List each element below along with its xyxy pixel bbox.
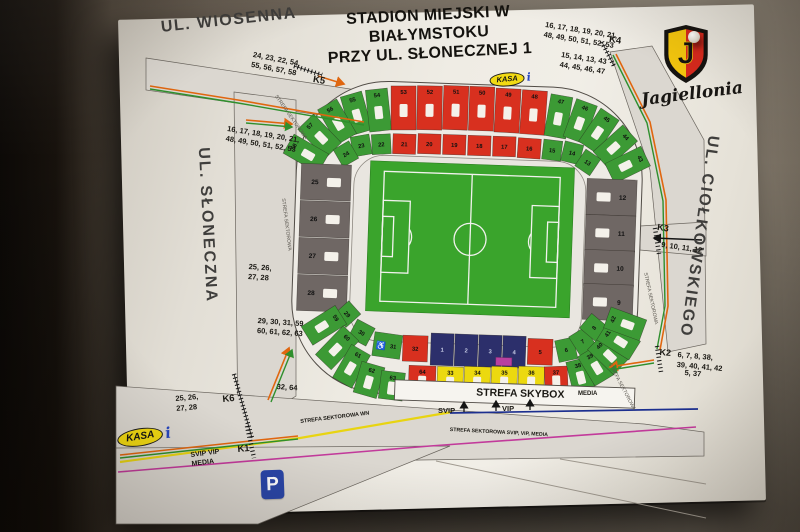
sector-list-se2: 5, 37 xyxy=(684,368,701,379)
gate-label-k5: K5 xyxy=(312,74,326,88)
sector-number-49: 49 xyxy=(505,92,513,98)
sector-21: 21 xyxy=(392,134,416,155)
sector-17: 17 xyxy=(492,136,516,157)
sector-number-16: 16 xyxy=(526,146,534,152)
sector-number-28: 28 xyxy=(307,290,315,297)
sector-32: 32 xyxy=(402,335,428,362)
sector-number-26: 26 xyxy=(310,216,318,223)
sector-2: 2 xyxy=(454,334,478,367)
sector-number-11: 11 xyxy=(618,231,625,238)
sector-10: 10 xyxy=(583,249,634,287)
sector-number-19: 19 xyxy=(451,143,458,149)
sector-list-w2: 25, 26, 27, 28 xyxy=(248,262,272,283)
pitch xyxy=(365,161,574,318)
media-strip xyxy=(496,357,512,366)
sector-54: 54 xyxy=(365,88,391,132)
parking-sign: P xyxy=(261,470,285,500)
sector-31: 31♿ xyxy=(372,332,403,360)
sector-53: 53 xyxy=(391,86,416,130)
sector-20: 20 xyxy=(417,133,441,154)
sector-list-sw2: 32, 64 xyxy=(276,382,297,393)
sector-27: 27 xyxy=(298,237,349,275)
sector-number-2: 2 xyxy=(464,348,467,354)
sector-15: 15 xyxy=(542,139,563,161)
sector-number-17: 17 xyxy=(501,145,508,151)
sector-52: 52 xyxy=(417,86,443,130)
sector-25: 25 xyxy=(300,163,351,201)
sector-number-52: 52 xyxy=(427,90,434,96)
sector-1: 1 xyxy=(430,333,454,366)
sector-number-20: 20 xyxy=(426,142,433,148)
sector-list-sw: 29, 30, 31, 59 60, 61, 62, 63 xyxy=(257,316,304,339)
sector-49: 49 xyxy=(494,88,521,133)
sector-number-64: 64 xyxy=(419,370,426,376)
sector-number-47: 47 xyxy=(557,99,564,106)
sector-number-25: 25 xyxy=(311,179,319,186)
sector-number-32: 32 xyxy=(412,347,419,353)
sector-number-37: 37 xyxy=(553,370,560,376)
sector-11: 11 xyxy=(585,214,636,252)
sector-number-10: 10 xyxy=(616,266,624,273)
sector-28: 28 xyxy=(296,274,347,312)
stadium-bowl: 5554535251504948474656575845444323222120… xyxy=(275,78,655,410)
sector-number-12: 12 xyxy=(619,195,627,202)
sector-5: 5 xyxy=(527,338,553,365)
sector-number-36: 36 xyxy=(528,370,535,376)
road-edge-se-1 xyxy=(436,461,706,518)
sector-number-34: 34 xyxy=(474,371,481,377)
sector-list-k6: 25, 26, 27, 28 xyxy=(175,392,200,413)
sector-number-21: 21 xyxy=(401,142,408,148)
sector-number-22: 22 xyxy=(378,142,385,148)
route-label-svip-vip-media: SVIP VIP MEDIA xyxy=(190,447,221,469)
sector-number-18: 18 xyxy=(476,144,483,150)
route-blue-vip xyxy=(450,409,698,413)
sector-16: 16 xyxy=(517,138,541,160)
sector-number-48: 48 xyxy=(531,94,539,100)
sector-12: 12 xyxy=(586,178,637,216)
pushpin xyxy=(688,31,700,43)
gate-label-k2: K2 xyxy=(659,347,671,360)
sector-19: 19 xyxy=(442,134,466,155)
sector-50: 50 xyxy=(468,86,495,131)
gate-label-k3: K3 xyxy=(656,222,669,235)
sector-51: 51 xyxy=(442,85,469,130)
sector-22: 22 xyxy=(371,134,391,155)
gate-label-k6: K6 xyxy=(222,393,235,406)
photo-of-stadium-map-sign: 5554535251504948474656575845444323222120… xyxy=(0,0,800,532)
gate-label-k4: K4 xyxy=(608,34,622,48)
sector-48: 48 xyxy=(519,90,547,136)
sector-number-35: 35 xyxy=(501,371,508,377)
gate-label-k1: K1 xyxy=(237,443,250,456)
wheelchair-icon: ♿ xyxy=(376,340,387,351)
sector-number-51: 51 xyxy=(453,90,460,96)
sector-26: 26 xyxy=(299,200,350,238)
sector-number-53: 53 xyxy=(400,90,407,96)
road-edge-se-2 xyxy=(560,459,706,484)
sector-number-9: 9 xyxy=(617,300,621,307)
parking-icon: P xyxy=(266,473,279,495)
sector-18: 18 xyxy=(467,135,491,156)
sector-number-27: 27 xyxy=(309,253,317,260)
jagiellonia-crest-icon: J xyxy=(662,24,710,84)
svip-label: SVIP xyxy=(438,406,455,416)
vip-label: VIP xyxy=(502,404,514,414)
sector-number-33: 33 xyxy=(447,371,454,377)
sector-number-50: 50 xyxy=(479,91,486,97)
